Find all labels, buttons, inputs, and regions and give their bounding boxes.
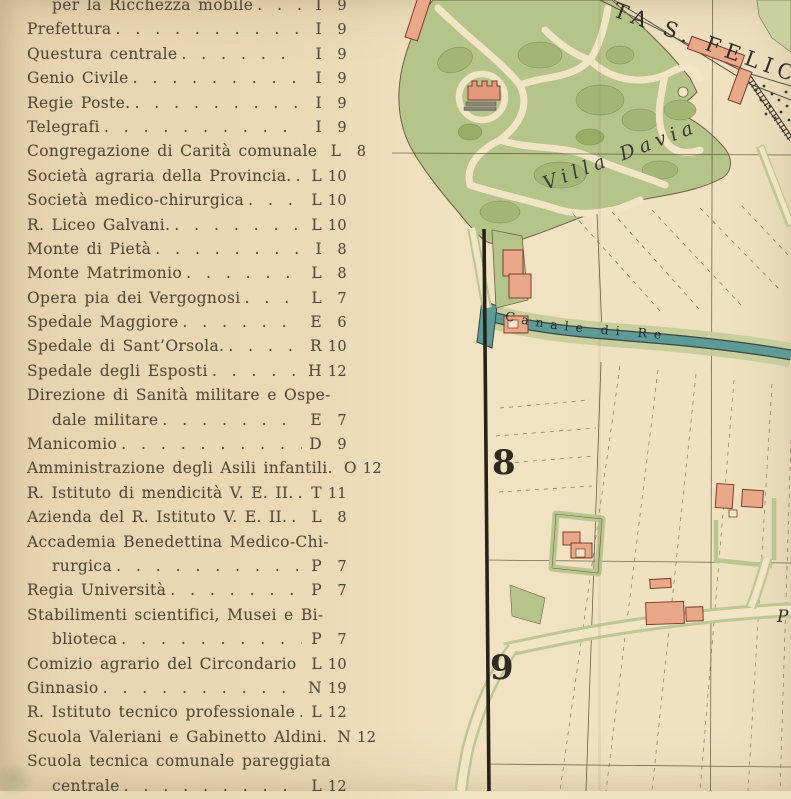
grid-letter: L <box>305 505 322 529</box>
entry-name: Congregazione di Carità comunale <box>27 139 317 163</box>
grid-letter: T <box>305 481 322 505</box>
dot-leader <box>134 91 302 115</box>
dot-leader <box>116 554 302 578</box>
grid-number: 7 <box>322 409 347 433</box>
entry-name: Telegrafi <box>27 115 100 139</box>
dot-leader <box>121 627 302 651</box>
entry-name: Monte di Pietà <box>27 237 151 261</box>
grid-number: 12 <box>351 726 376 750</box>
grid-letter: L <box>305 286 322 310</box>
index-entry: Spedale di Sant’Orsola. R 10 <box>0 334 352 358</box>
index-entry: centrale L 12 <box>0 774 352 798</box>
grid-number: 10 <box>322 335 347 359</box>
grid-letter: L <box>305 652 322 676</box>
index-entry: Opera pia dei Vergognosi L 7 <box>0 286 352 310</box>
grid-number: 7 <box>322 287 347 311</box>
grid-letter: P <box>305 627 322 651</box>
dot-leader <box>257 0 302 17</box>
index-entry: Scuola Valeriani e Gabinetto Aldini. N 1… <box>0 725 352 749</box>
grid-row-number-8: 8 <box>492 443 516 483</box>
grid-letter: I <box>305 237 322 261</box>
grid-number: 12 <box>322 360 347 384</box>
fold-crease <box>598 0 601 791</box>
index-entry: blioteca P 7 <box>0 627 352 651</box>
grid-number: 10 <box>322 214 347 238</box>
grid-letter: N <box>334 725 351 749</box>
dot-leader <box>212 359 302 383</box>
dot-leader <box>124 774 302 798</box>
entry-name: Monte Matrimonio <box>27 261 182 285</box>
entry-name: blioteca <box>52 627 117 651</box>
grid-number: 9 <box>322 116 347 140</box>
entry-name: per la Ricchezza mobile <box>52 0 253 17</box>
dot-leader <box>186 261 302 285</box>
entry-name: dale militare <box>52 408 158 432</box>
index-entry: Questura centrale I 9 <box>0 42 352 66</box>
grid-letter: L <box>324 139 341 163</box>
reno-canal: Canale di Re <box>477 300 791 355</box>
pond <box>678 87 688 97</box>
grid-number: 9 <box>322 0 347 18</box>
grid-number: 19 <box>322 677 347 701</box>
grid-letter: L <box>305 164 322 188</box>
grid-letter: L <box>305 188 322 212</box>
index-entry: Azienda del R. Istituto V. E. II. L 8 <box>0 505 352 529</box>
dot-leader <box>301 652 302 676</box>
grid-letter: H <box>305 359 322 383</box>
dot-leader <box>116 17 302 41</box>
entry-name: R. Liceo Galvani. <box>27 213 170 237</box>
grid-letter: I <box>305 42 322 66</box>
dot-leader <box>296 164 302 188</box>
dot-leader <box>298 481 302 505</box>
index-entry: Comizio agrario del Circondario L 10 <box>0 652 352 676</box>
grid-letter: D <box>305 432 322 456</box>
grid-letter: I <box>305 115 322 139</box>
dot-leader <box>245 286 302 310</box>
scanned-map-page: Canale di Re <box>0 0 791 791</box>
index-entry: Ginnasio N 19 <box>0 676 352 700</box>
entry-name: R. Istituto di mendicità V. E. II. <box>27 481 294 505</box>
roadside-buildings <box>646 578 704 624</box>
grid-row-number-9: 9 <box>490 648 514 688</box>
entry-name: Stabilimenti scientifici, Musei e Bi- <box>27 603 323 627</box>
grid-number: 7 <box>322 579 347 603</box>
index-entry: per la Ricchezza mobile I 9 <box>0 0 352 17</box>
partial-place-label: P <box>776 607 789 627</box>
grid-number: 9 <box>322 92 347 116</box>
entry-name: Spedale Maggiore <box>27 310 178 334</box>
dot-leader <box>133 66 302 90</box>
entry-name: Direzione di Sanità militare e Ospe- <box>27 383 331 407</box>
entry-name: Società medico-chirurgica <box>27 188 244 212</box>
eastern-farmstead <box>714 483 774 566</box>
entry-name: Società agraria della Provincia. <box>27 164 292 188</box>
grid-number: 12 <box>322 775 347 799</box>
index-entry: Prefettura I 9 <box>0 17 352 41</box>
dot-leader <box>121 432 302 456</box>
grid-letter: O <box>340 456 357 480</box>
dot-leader <box>291 505 302 529</box>
dot-leader <box>162 408 302 432</box>
index-rows: per la Ricchezza mobile I 9 Prefettura I… <box>0 0 352 798</box>
grid-number: 7 <box>322 628 347 652</box>
index-entry: Stabilimenti scientifici, Musei e Bi- <box>0 603 352 627</box>
grid-number: 11 <box>322 482 347 506</box>
grid-number: 10 <box>322 189 347 213</box>
index-entry: Amministrazione degli Asili infantili. O… <box>0 456 352 480</box>
grid-letter: L <box>305 700 322 724</box>
index-entry: Scuola tecnica comunale pareggiata <box>0 749 352 773</box>
dot-leader <box>103 676 302 700</box>
entry-name: Amministrazione degli Asili infantili. <box>27 456 333 480</box>
grid-number: 12 <box>322 701 347 725</box>
entry-name: Questura centrale <box>27 42 177 66</box>
dot-leader <box>299 700 302 724</box>
grid-number: 7 <box>322 555 347 579</box>
grid-number: 12 <box>357 457 382 481</box>
entry-name: Scuola Valeriani e Gabinetto Aldini. <box>27 725 327 749</box>
roadside-green <box>757 0 791 52</box>
index-entry: Spedale degli Esposti H 12 <box>0 359 352 383</box>
entry-name: Spedale di Sant’Orsola. <box>27 334 224 358</box>
entry-name: Genio Civile <box>27 66 129 90</box>
dot-leader <box>181 42 302 66</box>
index-entry: Manicomio D 9 <box>0 432 352 456</box>
grid-number: 8 <box>322 262 347 286</box>
index-entry: Società agraria della Provincia. L 10 <box>0 164 352 188</box>
entry-name: Scuola tecnica comunale pareggiata <box>27 749 331 773</box>
grid-number: 8 <box>322 506 347 530</box>
entry-name: Ginnasio <box>27 676 99 700</box>
index-entry: Regie Poste. I 9 <box>0 91 352 115</box>
index-entry: Monte Matrimonio L 8 <box>0 261 352 285</box>
grid-number: 9 <box>322 18 347 42</box>
index-entry: dale militare E 7 <box>0 408 352 432</box>
index-entry: Accademia Benedettina Medico-Chi- <box>0 530 352 554</box>
index-entry: R. Istituto tecnico professionale L 12 <box>0 700 352 724</box>
index-entry: Monte di Pietà I 8 <box>0 237 352 261</box>
entry-name: Spedale degli Esposti <box>27 359 208 383</box>
entry-name: rurgica <box>52 554 112 578</box>
grid-number: 10 <box>322 653 347 677</box>
index-entry: Telegrafi I 9 <box>0 115 352 139</box>
dot-leader <box>248 188 302 212</box>
railway-line <box>745 72 791 226</box>
grid-letter: N <box>305 676 322 700</box>
grid-letter: E <box>305 310 322 334</box>
grid-letter: I <box>305 0 322 17</box>
grid-number: 9 <box>322 43 347 67</box>
farm-near-park <box>492 230 531 308</box>
entry-name: Manicomio <box>27 432 117 456</box>
grid-letter: L <box>305 774 322 798</box>
grid-letter: I <box>305 91 322 115</box>
entry-name: Azienda del R. Istituto V. E. II. <box>27 505 287 529</box>
grid-letter: I <box>305 66 322 90</box>
dot-leader <box>228 334 302 358</box>
grid-number: 8 <box>341 140 366 164</box>
dot-leader <box>174 213 302 237</box>
index-entry: Genio Civile I 9 <box>0 66 352 90</box>
index-entry: Spedale Maggiore E 6 <box>0 310 352 334</box>
index-entry: R. Istituto di mendicità V. E. II. T 11 <box>0 481 352 505</box>
grid-number: 9 <box>322 67 347 91</box>
entry-name: Comizio agrario del Circondario <box>27 652 297 676</box>
entry-name: Prefettura <box>27 17 112 41</box>
entry-name: Opera pia dei Vergognosi <box>27 286 241 310</box>
dot-leader <box>170 578 302 602</box>
index-entry: R. Liceo Galvani. L 10 <box>0 213 352 237</box>
index-entry: Congregazione di Carità comunale L 8 <box>0 139 352 163</box>
dot-leader <box>104 115 302 139</box>
map-index-panel: per la Ricchezza mobile I 9 Prefettura I… <box>0 0 352 798</box>
index-entry: rurgica P 7 <box>0 554 352 578</box>
entry-name: R. Istituto tecnico professionale <box>27 700 295 724</box>
dot-leader <box>182 310 302 334</box>
entry-name: centrale <box>52 774 120 798</box>
grid-letter: L <box>305 261 322 285</box>
grid-letter: P <box>305 578 322 602</box>
grid-letter: E <box>305 408 322 432</box>
grid-number: 10 <box>322 165 347 189</box>
index-entry: Direzione di Sanità militare e Ospe- <box>0 383 352 407</box>
entry-name: Regia Università <box>27 578 166 602</box>
grid-letter: I <box>305 17 322 41</box>
grid-number: 8 <box>322 238 347 262</box>
grid-number: 9 <box>322 433 347 457</box>
grid-number: 6 <box>322 311 347 335</box>
index-entry: Società medico-chirurgica L 10 <box>0 188 352 212</box>
grid-letter: P <box>305 554 322 578</box>
index-entry: Regia Università P 7 <box>0 578 352 602</box>
entry-name: Regie Poste. <box>27 91 130 115</box>
grid-letter: R <box>305 334 322 358</box>
grid-letter: L <box>305 213 322 237</box>
entry-name: Accademia Benedettina Medico-Chi- <box>27 530 329 554</box>
dot-leader <box>155 237 302 261</box>
